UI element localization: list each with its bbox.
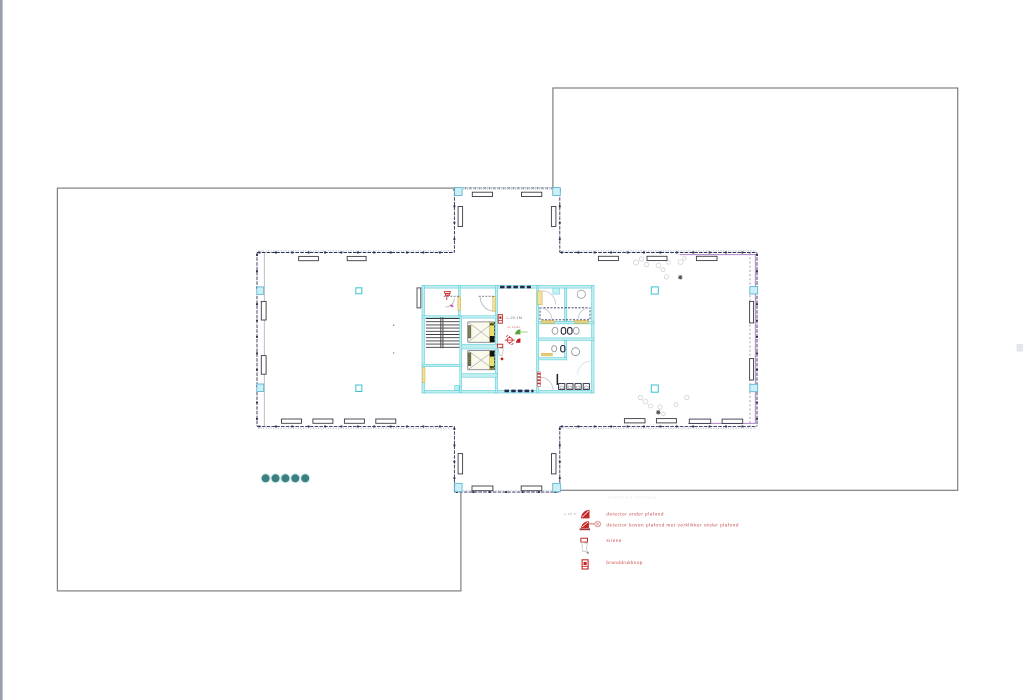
svg-text:sirene: sirene: [606, 538, 621, 543]
svg-text:plattegrond verdieping: plattegrond verdieping: [608, 496, 656, 500]
svg-text:detector boven plafond met ver: detector boven plafond met verklikker on…: [606, 523, 738, 528]
svg-text:detector onder plafond: detector onder plafond: [606, 511, 663, 516]
svg-text:branddrukknop: branddrukknop: [606, 560, 642, 565]
svg-text:L-20.1M: L-20.1M: [507, 315, 523, 320]
svg-text:L-20.5: L-20.5: [564, 512, 576, 516]
svg-text:no sprkl: no sprkl: [507, 325, 520, 329]
